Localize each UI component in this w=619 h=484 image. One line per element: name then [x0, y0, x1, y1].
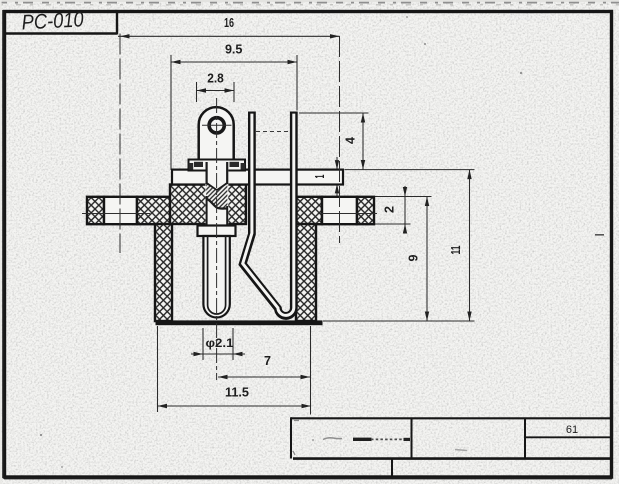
svg-text:11.5: 11.5	[225, 386, 249, 400]
svg-text:1: 1	[313, 175, 327, 179]
svg-text:9: 9	[407, 255, 421, 262]
svg-text:61: 61	[566, 424, 578, 436]
svg-text:2.8: 2.8	[207, 72, 224, 86]
svg-text:11: 11	[449, 246, 463, 255]
svg-text:4: 4	[344, 137, 358, 144]
svg-text:7: 7	[264, 354, 271, 368]
svg-text:PC-010: PC-010	[21, 8, 84, 34]
svg-text:9.5: 9.5	[225, 43, 243, 57]
svg-text:16: 16	[224, 16, 234, 30]
svg-text:2: 2	[383, 206, 397, 213]
svg-text:φ2.1: φ2.1	[206, 336, 234, 350]
